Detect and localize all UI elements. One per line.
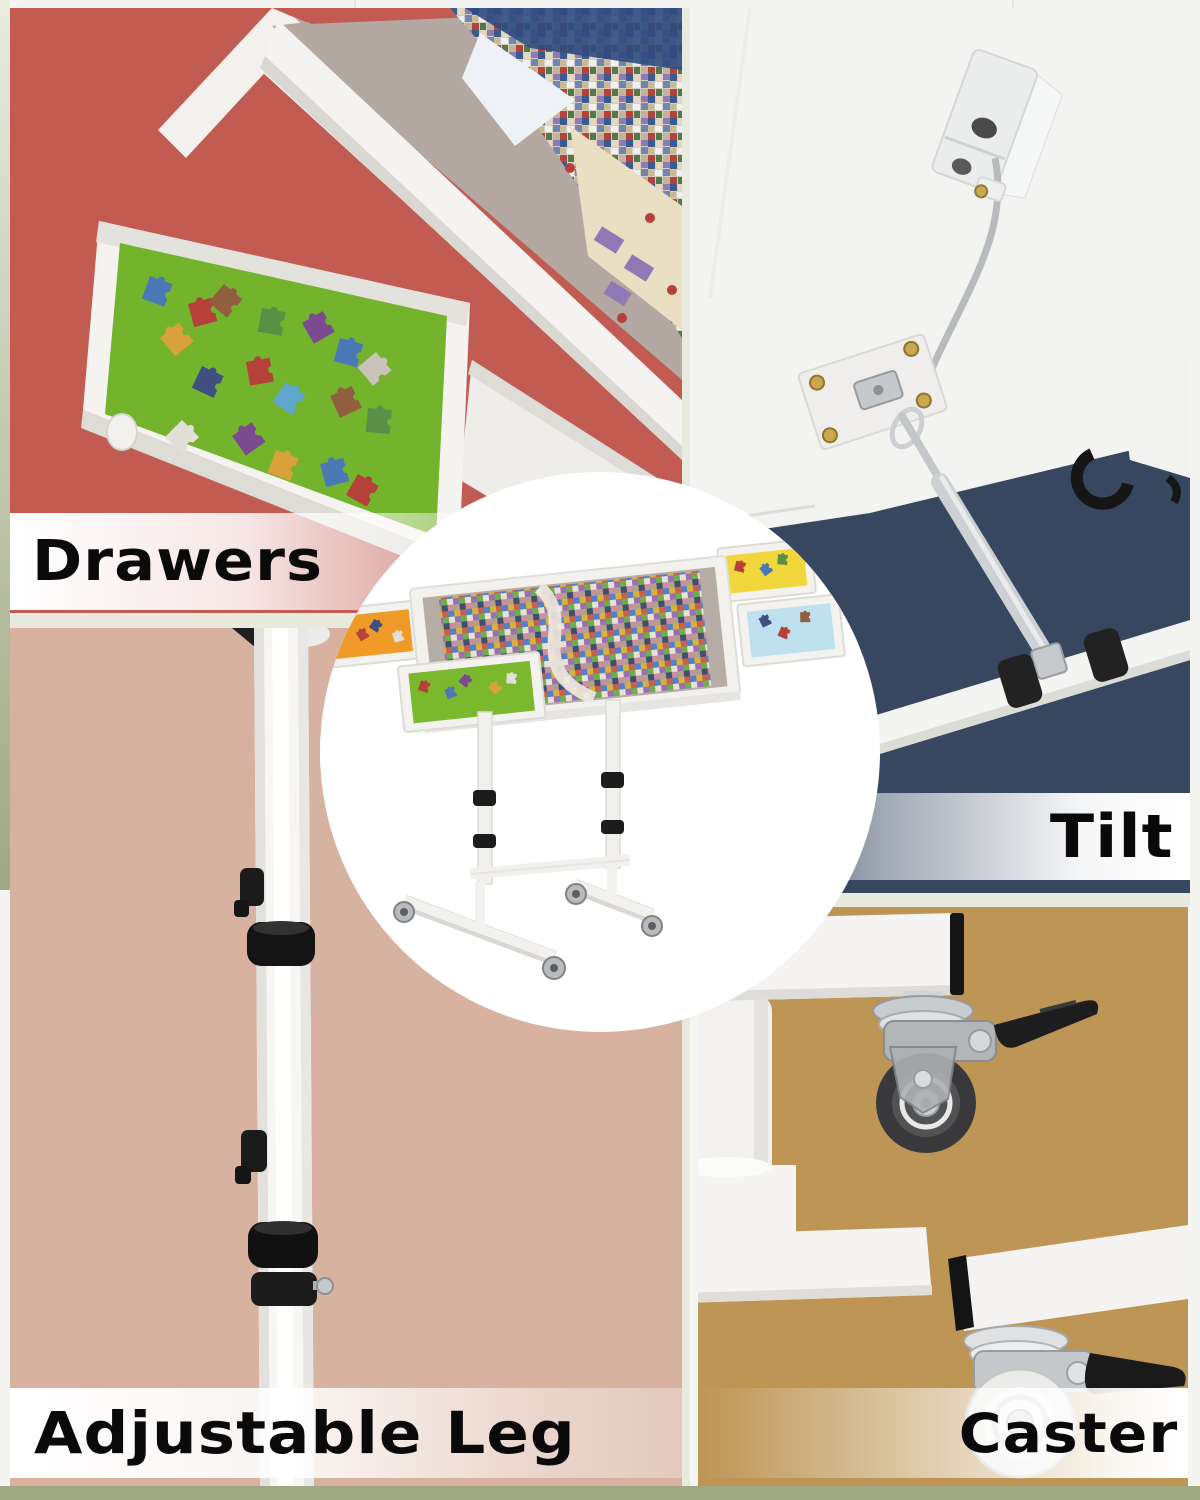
rolling-base (394, 860, 662, 979)
product-feature-collage: Drawers Tilt Adjustable Leg Caster (0, 0, 1200, 1500)
tilt-label: Tilt (1050, 802, 1174, 872)
adjustable-leg-label-band: Adjustable Leg (10, 1388, 682, 1478)
drawer-knob (107, 414, 137, 450)
puzzle-table-product-illustration (320, 472, 880, 1032)
tile-seam (1012, 0, 1014, 8)
tray-blue (737, 594, 845, 666)
tray-green (398, 652, 546, 732)
bottom-edge-strip (0, 1486, 1200, 1500)
caster-label-band: Caster (698, 1388, 1188, 1478)
product-legs (473, 700, 624, 884)
leg-pole (254, 628, 314, 1486)
adjustable-leg-label: Adjustable Leg (34, 1399, 576, 1467)
caster-label: Caster (958, 1402, 1178, 1465)
drawers-label: Drawers (32, 529, 323, 594)
left-edge-strip (0, 0, 10, 890)
product-overview-inset (320, 472, 880, 1032)
tile-seam (354, 0, 356, 8)
puzzle-board (320, 537, 848, 744)
